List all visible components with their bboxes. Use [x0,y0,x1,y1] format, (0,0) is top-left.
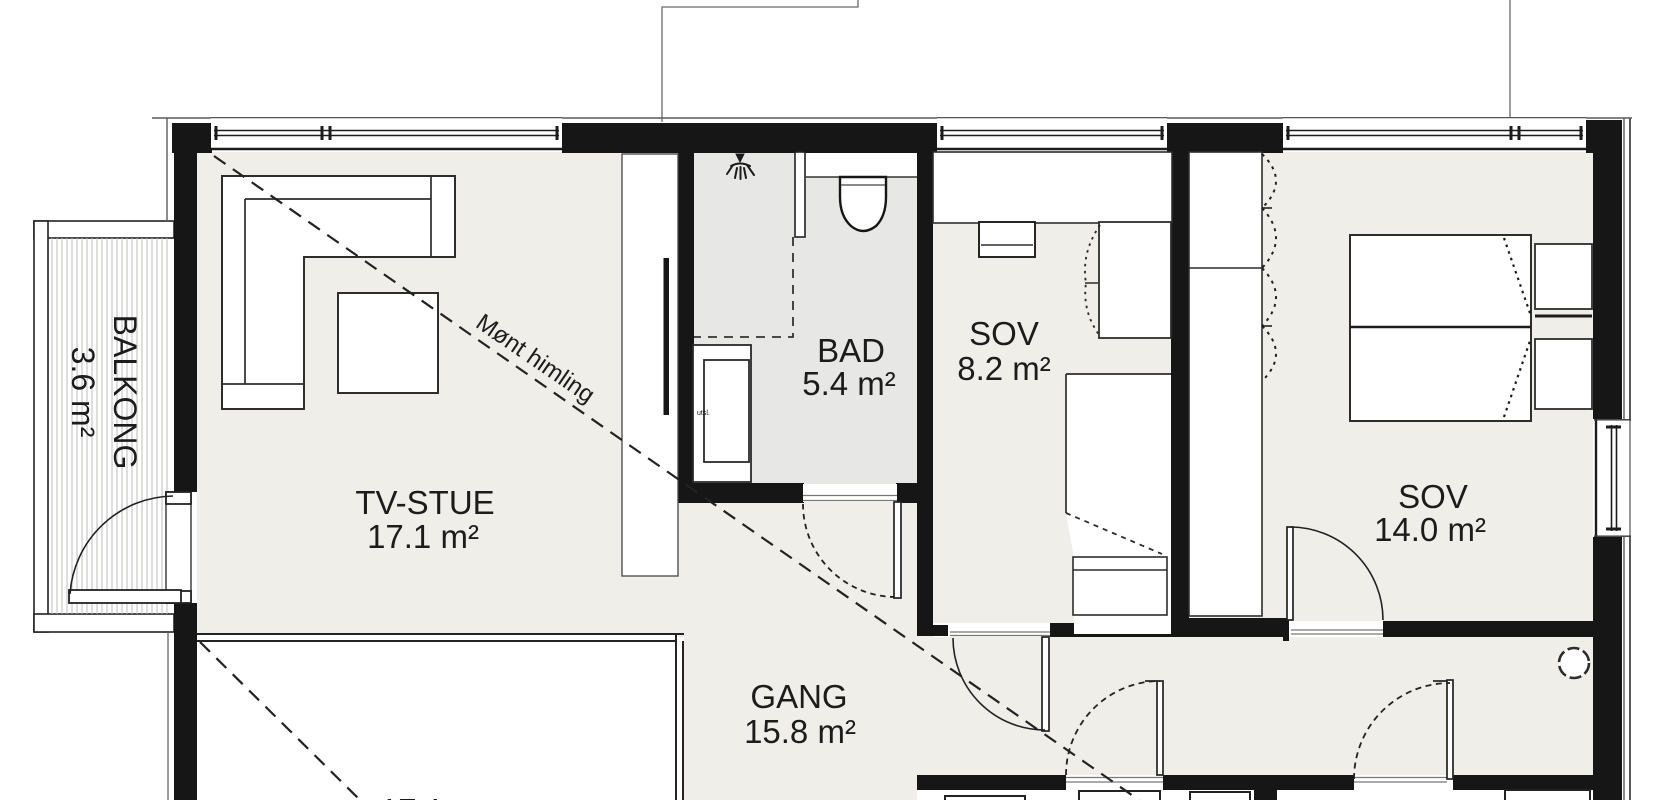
svg-text:15.8 m²: 15.8 m² [744,713,856,750]
svg-text:5.4 m²: 5.4 m² [802,365,896,402]
svg-text:8.2 m²: 8.2 m² [957,350,1051,387]
svg-text:17.1 m²: 17.1 m² [367,518,479,555]
svg-text:3.6 m²: 3.6 m² [65,347,101,438]
svg-text:14.0 m²: 14.0 m² [1374,511,1486,548]
svg-text:GANG: GANG [750,678,847,715]
svg-text:utsl.: utsl. [697,410,710,417]
svg-text:SOV: SOV [1398,478,1468,515]
svg-text:17.1: 17.1 [380,792,444,800]
svg-text:BALKONG: BALKONG [107,315,143,470]
svg-text:TV-STUE: TV-STUE [355,484,494,521]
svg-text:BAD: BAD [817,332,885,369]
svg-text:SOV: SOV [969,315,1039,352]
